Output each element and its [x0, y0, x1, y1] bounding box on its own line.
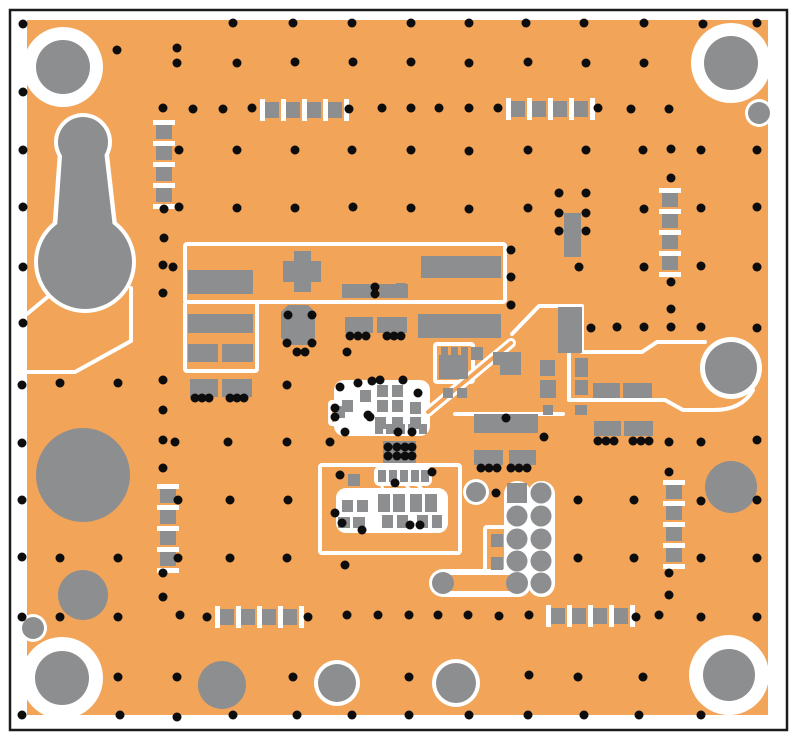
via-hole — [384, 443, 393, 452]
smd-pad — [378, 470, 386, 482]
via-hole — [289, 673, 298, 682]
smd-pad — [375, 424, 383, 434]
via-hole — [465, 19, 474, 28]
via-hole — [283, 438, 292, 447]
chain-pad — [551, 608, 565, 624]
round-pad — [748, 102, 770, 124]
smd-pad — [188, 270, 253, 294]
via-hole — [19, 20, 28, 29]
via-hole — [326, 438, 335, 447]
via-hole — [667, 174, 676, 183]
chain-tick — [663, 501, 685, 506]
via-hole — [174, 496, 183, 505]
via-hole — [667, 145, 676, 154]
via-hole — [753, 324, 762, 333]
chain-pad — [572, 608, 586, 624]
via-hole — [665, 468, 674, 477]
via-hole — [502, 414, 511, 423]
via-hole — [525, 611, 534, 620]
header-round-pad — [507, 529, 528, 550]
via-hole — [368, 377, 377, 386]
via-hole — [639, 146, 648, 155]
smd-pad — [441, 347, 448, 356]
chain-pad — [156, 146, 172, 160]
via-hole — [575, 263, 584, 272]
header-round-pad — [507, 506, 528, 527]
chain-tick — [157, 547, 179, 552]
via-hole — [582, 146, 591, 155]
via-hole — [205, 394, 214, 403]
via-hole — [343, 348, 352, 357]
chain-tick — [323, 99, 328, 121]
via-hole — [345, 105, 354, 114]
via-hole — [160, 234, 169, 243]
via-hole — [341, 561, 350, 570]
via-hole — [493, 464, 502, 473]
chain-tick — [527, 98, 532, 120]
via-hole — [630, 554, 639, 563]
via-hole — [408, 428, 417, 437]
chain-pad — [662, 193, 678, 207]
via-hole — [507, 464, 516, 473]
via-hole — [114, 554, 123, 563]
chain-pad — [286, 102, 300, 118]
smd-pad — [382, 515, 393, 528]
via-hole — [18, 553, 27, 562]
via-hole — [640, 19, 649, 28]
loop-end-pad — [432, 572, 454, 594]
via-hole — [348, 19, 357, 28]
via-hole — [364, 411, 373, 420]
board-substrate — [27, 20, 768, 715]
chain-tick — [260, 99, 265, 121]
chain-tick — [548, 98, 553, 120]
via-hole — [293, 348, 302, 357]
smd-pad — [377, 385, 388, 397]
copper-circle — [198, 661, 246, 709]
via-hole — [159, 261, 168, 270]
via-hole — [159, 376, 168, 385]
chain-tick — [302, 99, 307, 121]
via-hole — [555, 227, 564, 236]
chain-pad — [511, 101, 525, 117]
smd-pad — [294, 251, 311, 292]
copper-circle — [36, 428, 130, 522]
chain-tick — [659, 230, 681, 235]
header-round-pad — [531, 529, 552, 550]
via-hole — [405, 711, 414, 720]
via-hole — [594, 104, 603, 113]
header-round-pad — [531, 551, 552, 572]
via-hole — [331, 509, 340, 518]
round-pad — [22, 617, 44, 639]
via-hole — [582, 227, 591, 236]
via-hole — [697, 438, 706, 447]
via-hole — [477, 464, 486, 473]
smd-pad — [400, 470, 408, 482]
smd-pad — [575, 380, 588, 395]
via-hole — [407, 19, 416, 28]
via-hole — [174, 554, 183, 563]
header-square-pad — [507, 483, 527, 503]
smd-pad — [623, 383, 652, 398]
via-hole — [371, 290, 380, 299]
via-hole — [229, 19, 238, 28]
via-hole — [640, 323, 649, 332]
via-hole — [18, 711, 27, 720]
chain-pad — [283, 609, 297, 625]
via-hole — [349, 58, 358, 67]
via-hole — [523, 464, 532, 473]
via-hole — [226, 554, 235, 563]
via-hole — [226, 496, 235, 505]
smd-pad — [558, 307, 582, 353]
smd-pad — [348, 474, 360, 486]
chain-pad — [262, 609, 276, 625]
smd-pad — [342, 500, 353, 512]
smd-pad — [222, 344, 253, 362]
via-hole — [346, 332, 355, 341]
via-hole — [160, 205, 169, 214]
chain-pad — [156, 125, 172, 139]
smd-pad — [342, 284, 372, 298]
via-hole — [540, 433, 549, 442]
chain-pad — [156, 167, 172, 181]
via-hole — [348, 711, 357, 720]
smd-pad — [443, 388, 453, 398]
via-hole — [248, 104, 257, 113]
via-hole — [407, 146, 416, 155]
via-hole — [229, 711, 238, 720]
via-hole — [408, 452, 417, 461]
chain-pad — [532, 101, 546, 117]
via-hole — [283, 381, 292, 390]
chain-tick — [299, 606, 304, 628]
via-hole — [173, 59, 182, 68]
via-hole — [159, 436, 168, 445]
via-hole — [464, 611, 473, 620]
via-hole — [283, 554, 292, 563]
via-hole — [159, 569, 168, 578]
via-hole — [582, 59, 591, 68]
via-hole — [580, 711, 589, 720]
via-hole — [18, 613, 27, 622]
mounting-hole — [703, 649, 755, 701]
smd-pad — [471, 347, 483, 360]
chain-tick — [257, 606, 262, 628]
via-hole — [240, 394, 249, 403]
via-hole — [414, 389, 423, 398]
via-hole — [602, 437, 611, 446]
via-hole — [525, 671, 534, 680]
via-hole — [699, 20, 708, 29]
via-hole — [113, 46, 122, 55]
copper-circle — [705, 461, 757, 513]
via-hole — [697, 204, 706, 213]
chain-pad — [307, 102, 321, 118]
chain-pad — [160, 510, 176, 524]
chain-tick — [609, 605, 614, 627]
via-hole — [336, 383, 345, 392]
via-hole — [494, 104, 503, 113]
via-hole — [406, 521, 415, 530]
chain-pad — [265, 102, 279, 118]
chain-pad — [160, 531, 176, 545]
chain-tick — [157, 505, 179, 510]
via-hole — [697, 323, 706, 332]
smd-pad — [575, 358, 588, 377]
via-hole — [18, 439, 27, 448]
chain-tick — [567, 605, 572, 627]
via-hole — [515, 464, 524, 473]
via-hole — [407, 104, 416, 113]
via-hole — [753, 554, 762, 563]
chain-tick — [236, 606, 241, 628]
pcb-layout-canvas — [0, 0, 796, 741]
via-hole — [358, 526, 367, 535]
via-hole — [376, 376, 385, 385]
via-hole — [405, 611, 414, 620]
chain-tick — [157, 526, 179, 531]
via-hole — [291, 146, 300, 155]
round-pad — [436, 663, 476, 703]
via-hole — [524, 204, 533, 213]
mounting-hole — [704, 36, 758, 90]
smd-pad — [461, 347, 468, 356]
chain-pad — [666, 548, 682, 562]
smd-pad — [410, 402, 421, 414]
via-hole — [574, 554, 583, 563]
via-hole — [640, 263, 649, 272]
via-hole — [507, 273, 516, 282]
via-hole — [159, 289, 168, 298]
via-hole — [56, 613, 65, 622]
chain-tick — [663, 522, 685, 527]
via-hole — [233, 59, 242, 68]
smd-pad — [377, 400, 388, 412]
smd-pad — [419, 424, 427, 434]
via-hole — [524, 711, 533, 720]
via-hole — [354, 332, 363, 341]
via-hole — [610, 437, 619, 446]
via-hole — [203, 613, 212, 622]
via-hole — [408, 443, 417, 452]
chain-pad — [666, 506, 682, 520]
mounting-hole — [35, 651, 89, 705]
via-hole — [665, 105, 674, 114]
via-hole — [341, 428, 350, 437]
via-hole — [173, 713, 182, 722]
smd-pad — [411, 470, 419, 482]
via-hole — [397, 332, 406, 341]
smd-pad — [393, 494, 405, 512]
smd-pad — [421, 256, 501, 278]
chain-tick — [663, 564, 685, 569]
via-hole — [753, 613, 762, 622]
via-hole — [465, 147, 474, 156]
copper-circle — [58, 570, 108, 620]
round-pad — [466, 482, 486, 502]
via-hole — [338, 519, 347, 528]
via-hole — [233, 146, 242, 155]
chain-pad — [614, 608, 628, 624]
chain-tick — [659, 272, 681, 277]
via-hole — [173, 44, 182, 53]
chain-pad — [328, 102, 342, 118]
via-hole — [175, 146, 184, 155]
smd-pad — [500, 352, 521, 375]
chain-tick — [281, 99, 286, 121]
via-hole — [354, 379, 363, 388]
via-hole — [224, 438, 233, 447]
via-hole — [753, 496, 762, 505]
via-hole — [343, 611, 352, 620]
via-hole — [173, 673, 182, 682]
smd-pad — [345, 317, 373, 333]
pcb-figure — [0, 0, 796, 741]
via-hole — [627, 105, 636, 114]
via-hole — [362, 332, 371, 341]
via-hole — [507, 301, 516, 310]
via-hole — [632, 613, 641, 622]
via-hole — [753, 19, 762, 28]
via-hole — [555, 189, 564, 198]
via-hole — [582, 209, 591, 218]
via-hole — [336, 471, 345, 480]
smd-pad — [540, 380, 556, 398]
via-hole — [434, 611, 443, 620]
round-pad — [705, 342, 757, 394]
via-hole — [289, 19, 298, 28]
smd-pad — [624, 421, 653, 436]
via-hole — [19, 319, 28, 328]
via-hole — [435, 104, 444, 113]
via-hole — [495, 612, 504, 621]
via-hole — [19, 146, 28, 155]
smd-pad — [491, 557, 503, 570]
chain-tick — [153, 183, 175, 188]
via-hole — [19, 263, 28, 272]
smd-pad — [593, 383, 620, 398]
via-hole — [667, 305, 676, 314]
via-hole — [524, 146, 533, 155]
via-hole — [291, 204, 300, 213]
via-hole — [308, 311, 317, 320]
via-hole — [169, 263, 178, 272]
via-hole — [293, 711, 302, 720]
via-hole — [219, 105, 228, 114]
via-hole — [284, 496, 293, 505]
header-round-pad — [507, 551, 528, 572]
via-hole — [574, 496, 583, 505]
via-hole — [594, 437, 603, 446]
via-hole — [507, 246, 516, 255]
via-hole — [301, 348, 310, 357]
via-hole — [697, 146, 706, 155]
round-pad — [318, 664, 356, 702]
via-hole — [374, 611, 383, 620]
smd-pad — [509, 450, 536, 465]
chain-pad — [593, 608, 607, 624]
via-hole — [522, 19, 531, 28]
via-hole — [405, 673, 414, 682]
via-hole — [159, 104, 168, 113]
smd-pad — [425, 494, 437, 512]
chain-tick — [588, 605, 593, 627]
chain-tick — [153, 162, 175, 167]
via-hole — [391, 479, 400, 488]
via-hole — [635, 711, 644, 720]
via-hole — [630, 496, 639, 505]
chain-tick — [157, 484, 179, 489]
smd-pad — [594, 421, 621, 436]
smd-pad — [392, 385, 403, 397]
smd-pad — [564, 213, 581, 257]
via-hole — [667, 278, 676, 287]
via-hole — [348, 146, 357, 155]
chain-pad — [220, 609, 234, 625]
via-hole — [465, 104, 474, 113]
header-round-pad — [531, 573, 552, 594]
via-hole — [283, 339, 292, 348]
via-hole — [587, 324, 596, 333]
smd-pad — [396, 283, 406, 298]
smd-pad — [575, 405, 587, 415]
via-hole — [428, 468, 437, 477]
via-hole — [492, 489, 501, 498]
via-hole — [331, 413, 340, 422]
via-hole — [116, 711, 125, 720]
via-hole — [753, 436, 762, 445]
via-hole — [308, 339, 317, 348]
via-hole — [697, 613, 706, 622]
chain-tick — [546, 605, 551, 627]
smd-pad — [378, 494, 390, 512]
smd-pad — [396, 318, 406, 332]
smd-pad — [451, 347, 458, 356]
via-hole — [753, 146, 762, 155]
via-hole — [18, 496, 27, 505]
via-hole — [114, 379, 123, 388]
via-hole — [407, 204, 416, 213]
via-hole — [580, 19, 589, 28]
via-hole — [697, 262, 706, 271]
via-hole — [159, 593, 168, 602]
via-hole — [393, 443, 402, 452]
via-hole — [697, 711, 706, 720]
via-hole — [189, 105, 198, 114]
smd-pad — [357, 500, 368, 512]
via-hole — [524, 58, 533, 67]
header-round-pad — [507, 573, 528, 594]
smd-pad — [474, 450, 503, 465]
via-hole — [407, 58, 416, 67]
via-hole — [629, 437, 638, 446]
chain-pad — [160, 552, 176, 566]
chain-tick — [569, 98, 574, 120]
smd-pad — [360, 390, 371, 402]
chain-tick — [659, 188, 681, 193]
smd-pad — [491, 534, 503, 547]
chain-tick — [278, 606, 283, 628]
smd-pad — [543, 405, 553, 415]
via-hole — [284, 311, 293, 320]
via-hole — [378, 104, 387, 113]
via-hole — [637, 437, 646, 446]
smd-pad — [410, 494, 422, 512]
via-hole — [56, 379, 65, 388]
chain-pad — [553, 101, 567, 117]
